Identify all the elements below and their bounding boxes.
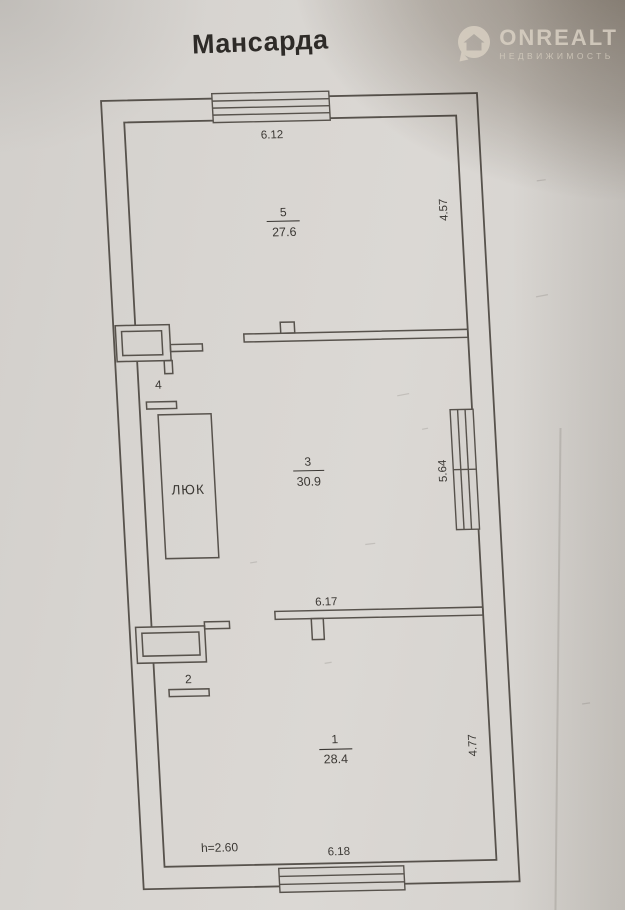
onrealt-tagline: НЕДВИЖИМОСТЬ: [499, 52, 618, 61]
room1-fraction-line: [319, 749, 352, 750]
wall-stub: [170, 344, 202, 352]
partition-room4-hatch: [146, 401, 176, 409]
partition-wall: [275, 607, 483, 619]
room2-number: 2: [185, 672, 193, 686]
window-top: [212, 91, 331, 122]
room3-fraction-line: [293, 470, 324, 471]
window-right: [450, 409, 479, 529]
partition-room5-room3: [243, 318, 468, 342]
wall-stub: [164, 361, 173, 374]
floor-plan-photo: Мансарда: [0, 0, 625, 910]
page-title: Мансарда: [191, 24, 329, 60]
paper-speckles: [230, 179, 590, 710]
wall-stub: [204, 621, 229, 629]
room5-number: 5: [279, 205, 287, 219]
flue-box-upper: [115, 324, 204, 375]
partition-wall: [244, 329, 468, 342]
dim-middle-right-height: 5.64: [437, 459, 450, 482]
house-pin-icon: [456, 24, 493, 64]
room1-area: 28.4: [323, 752, 348, 766]
onrealt-watermark: ONREALT НЕДВИЖИМОСТЬ: [456, 24, 618, 64]
onrealt-brand: ONREALT: [499, 27, 618, 49]
door-post: [311, 618, 324, 639]
flue-box-lower: [135, 621, 231, 663]
partition-room3-room1: [275, 607, 485, 640]
floor-plan: 5 27.6 3 30.9 1 28.4 4 2 ЛЮК 6.12 4.57 5: [0, 0, 625, 910]
room5-fraction-line: [267, 221, 300, 222]
door-post: [280, 322, 295, 333]
ceiling-height-label: h=2.60: [201, 840, 239, 855]
dim-lower-right-height: 4.77: [467, 734, 480, 757]
partition-room2: [169, 689, 209, 697]
hatch-label: ЛЮК: [171, 482, 205, 498]
window-bottom-frame: [279, 866, 405, 893]
dim-top-width: 6.12: [261, 129, 284, 141]
room3-number: 3: [304, 455, 312, 469]
dim-middle-width: 6.17: [315, 596, 338, 608]
window-bottom: [279, 866, 405, 893]
room5-area: 27.6: [272, 225, 297, 239]
dim-bottom-width: 6.18: [327, 846, 350, 858]
room1-number: 1: [331, 732, 339, 746]
room3-area: 30.9: [296, 474, 321, 488]
dim-upper-right-height: 4.57: [438, 198, 451, 221]
room4-number: 4: [155, 378, 163, 392]
